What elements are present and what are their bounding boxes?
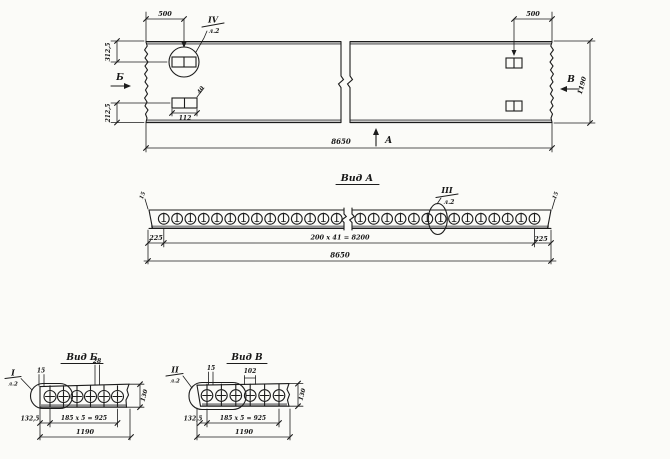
view-b-dims: 132,5 185 x 5 = 925 1190	[21, 408, 131, 440]
dim-label: 185 x 5 = 925	[61, 415, 107, 422]
dim-label: 15	[207, 365, 215, 372]
panel-right-edge	[550, 42, 553, 123]
panel-left-edge	[145, 42, 148, 123]
hole-row	[158, 213, 539, 224]
dim-label: 40	[197, 85, 206, 95]
view-a-dims: 225 200 x 41 = 8200 225 8650	[144, 229, 556, 264]
callout-sheet: л.2	[209, 28, 220, 35]
callout-sheet: л.2	[8, 382, 18, 388]
dim-label: 132,5	[184, 416, 203, 423]
dim-label: 102	[244, 368, 257, 375]
drawing-canvas: 500 IV л.2 312,5 212,5 Б	[0, 0, 670, 459]
dim-label: 15	[37, 368, 45, 375]
callout-number: I	[10, 368, 15, 378]
callout-sheet: л.2	[444, 199, 455, 206]
dim-label: 8650	[331, 137, 351, 146]
dim-label: 1190	[576, 75, 589, 95]
section-label: Б	[115, 73, 124, 83]
callout-number: III	[440, 185, 452, 195]
dim-label: 500	[526, 10, 540, 18]
view-a-title: Вид А	[340, 173, 374, 184]
dim-130-b: 130	[127, 384, 150, 407]
section-label: В	[566, 75, 575, 85]
panel-end-edge	[126, 384, 129, 407]
embed-detail-circle: IV л.2	[169, 15, 224, 78]
break-line	[348, 42, 353, 123]
dim-label: 312,5	[105, 43, 112, 62]
dim-label: 212,5	[105, 104, 112, 124]
anchor-row	[44, 386, 124, 407]
dim-label: 1190	[235, 428, 254, 436]
dim-label: 130	[298, 387, 308, 402]
dim-label: 132,5	[21, 416, 40, 423]
break-line	[339, 42, 344, 123]
embed-112: 112 40	[172, 85, 206, 122]
dim-500-right: 500	[512, 10, 553, 56]
view-v: Вид В II л.2 15 102 130	[166, 353, 308, 440]
section-label: А	[384, 136, 392, 146]
callout-sheet: л.2	[170, 379, 180, 385]
view-a: Вид А 15 15 III л.2	[139, 173, 560, 264]
section-arrow-a: А	[373, 128, 392, 146]
dim-label: 112	[179, 115, 192, 122]
dim-label: 185 x 5 = 925	[220, 415, 266, 422]
panel-drawing: 500 IV л.2 312,5 212,5 Б	[0, 0, 670, 459]
plan-view: 500 IV л.2 312,5 212,5 Б	[105, 10, 595, 152]
dim-label: 15	[139, 191, 147, 200]
section-arrow-b: Б	[111, 73, 131, 89]
dim-label: 8650	[330, 251, 350, 260]
dim-label: 130	[140, 388, 150, 403]
dim-label: 200 x 41 = 8200	[309, 234, 370, 242]
callout-number: II	[170, 365, 179, 375]
dim-8650: 8650	[146, 137, 552, 148]
dim-label: 500	[158, 10, 172, 18]
view-b: Вид Б I л.2 15 28 130	[5, 353, 150, 440]
dim-label: 28	[92, 358, 102, 365]
view-v-title: Вид В	[230, 353, 263, 363]
callout-number: IV	[207, 15, 219, 25]
panel-end-edge	[287, 384, 290, 407]
dim-500-left: 500	[146, 10, 187, 48]
dim-130-v: 130	[289, 384, 308, 407]
dim-label: 1190	[76, 428, 95, 436]
dim-label: 15	[552, 191, 560, 200]
